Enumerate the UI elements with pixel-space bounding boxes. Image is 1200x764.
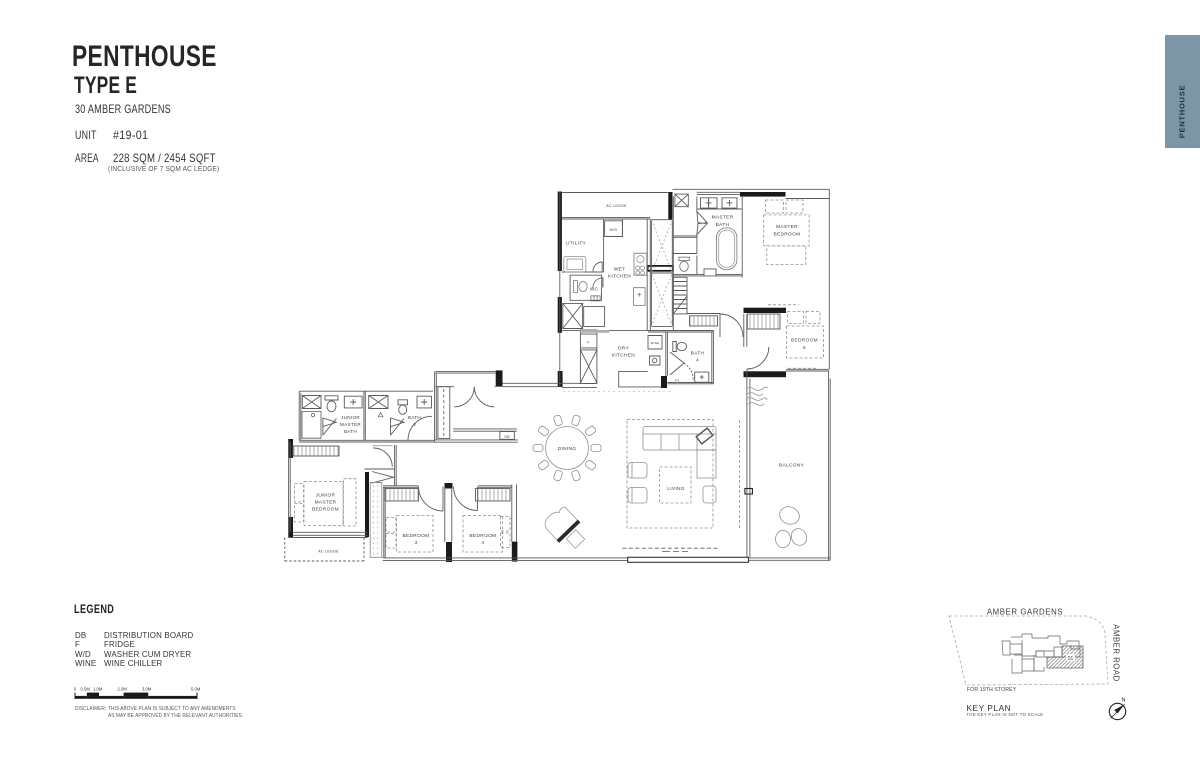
svg-text:4: 4	[696, 358, 699, 364]
svg-text:4: 4	[482, 540, 485, 546]
svg-text:AMBER ROAD: AMBER ROAD	[1112, 624, 1121, 681]
svg-text:1.0M: 1.0M	[93, 687, 103, 692]
svg-text:BEDROOM: BEDROOM	[403, 533, 430, 539]
svg-text:0: 0	[74, 687, 77, 692]
svg-text:BATH: BATH	[344, 429, 357, 434]
svg-text:JUNIOR: JUNIOR	[316, 493, 336, 499]
svg-text:F: F	[587, 341, 590, 345]
svg-text:MASTER: MASTER	[340, 422, 361, 427]
svg-text:BATH: BATH	[716, 222, 730, 228]
svg-text:2.0M: 2.0M	[118, 687, 128, 692]
svg-text:5.0M: 5.0M	[191, 687, 201, 692]
svg-text:5: 5	[803, 345, 806, 351]
svg-text:KITCHEN: KITCHEN	[608, 274, 631, 280]
svg-text:WET: WET	[614, 267, 626, 273]
svg-text:N: N	[1122, 698, 1126, 704]
svg-text:KITCHEN: KITCHEN	[612, 353, 635, 359]
svg-text:3: 3	[413, 422, 416, 427]
svg-text:MASTER: MASTER	[712, 215, 734, 221]
svg-text:DRY: DRY	[618, 346, 629, 352]
svg-text:BEDROOM: BEDROOM	[774, 232, 801, 238]
svg-text:JUNIOR: JUNIOR	[341, 415, 360, 420]
svg-text:BEDROOM: BEDROOM	[791, 338, 818, 344]
svg-text:DINING: DINING	[558, 446, 577, 452]
svg-text:UTILITY: UTILITY	[566, 241, 586, 247]
svg-text:WINE: WINE	[651, 341, 660, 345]
svg-text:0.5M: 0.5M	[81, 687, 91, 692]
svg-text:BEDROOM: BEDROOM	[470, 533, 497, 539]
svg-text:MASTER: MASTER	[776, 224, 798, 230]
svg-text:3: 3	[415, 540, 418, 546]
svg-text:BEDROOM: BEDROOM	[312, 507, 339, 513]
svg-text:W/D: W/D	[610, 228, 618, 232]
svg-text:THE KEY PLAN IS NOT TO SCALE: THE KEY PLAN IS NOT TO SCALE	[967, 712, 1044, 717]
svg-text:DB: DB	[505, 435, 511, 439]
svg-text:01: 01	[1068, 656, 1074, 662]
svg-text:MASTER: MASTER	[315, 500, 337, 506]
svg-text:AMBER GARDENS: AMBER GARDENS	[987, 608, 1063, 617]
svg-text:LIVING: LIVING	[667, 486, 685, 492]
svg-text:BALCONY: BALCONY	[779, 463, 805, 469]
svg-text:AC LEDGE: AC LEDGE	[606, 204, 627, 208]
svg-text:WC: WC	[590, 287, 599, 292]
svg-text:BATH: BATH	[408, 415, 421, 420]
svg-text:FOR 19TH STOREY: FOR 19TH STOREY	[967, 687, 1017, 693]
svg-text:BATH: BATH	[691, 351, 705, 357]
svg-text:AC LEDGE: AC LEDGE	[318, 550, 339, 554]
svg-text:3.0M: 3.0M	[142, 687, 152, 692]
